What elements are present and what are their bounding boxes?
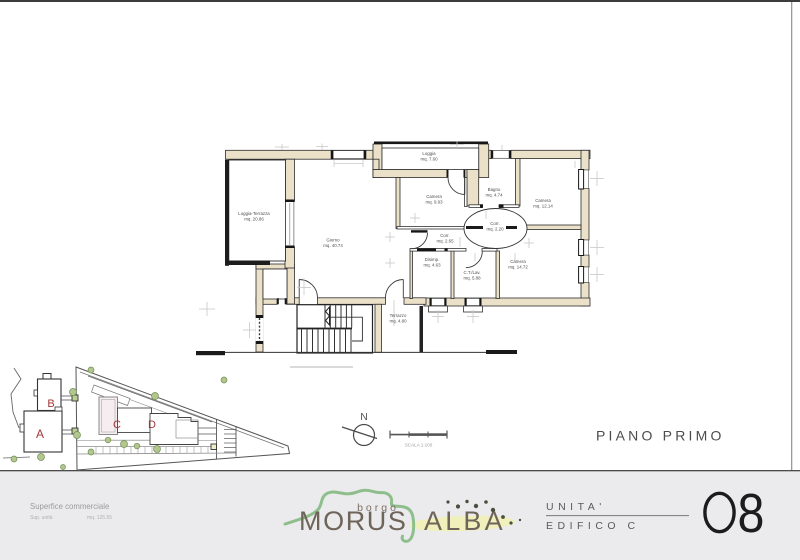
svg-text:mq. 5.88: mq. 5.88 [463,276,481,281]
svg-text:mq. 9.93: mq. 9.93 [425,200,443,205]
svg-text:mq. 40.74: mq. 40.74 [323,243,343,248]
svg-text:Terrazzo: Terrazzo [390,313,407,318]
svg-text:mq. 2.20: mq. 2.20 [486,227,504,232]
svg-text:UNITA': UNITA' [546,501,606,513]
svg-text:Camera: Camera [535,198,551,203]
svg-text:Sup. unità: Sup. unità [30,515,53,521]
svg-text:Loggia: Loggia [422,151,436,156]
svg-text:C.T./Lav.: C.T./Lav. [464,270,481,275]
svg-text:mq. 14.72: mq. 14.72 [508,265,528,270]
svg-text:mq. 125.55: mq. 125.55 [87,515,112,521]
svg-text:MORUS: MORUS [299,506,408,536]
svg-text:N: N [360,411,368,423]
svg-text:Bagno: Bagno [488,187,501,192]
svg-text:Superfice commerciale: Superfice commerciale [30,502,109,511]
svg-text:mq. 12.14: mq. 12.14 [533,204,553,209]
svg-text:mq. 4.63: mq. 4.63 [423,263,441,268]
svg-text:Corr.: Corr. [440,233,450,238]
svg-text:8: 8 [738,482,765,544]
svg-text:Disimp.: Disimp. [425,257,440,262]
svg-text:A: A [36,427,44,441]
svg-text:Giorno: Giorno [326,238,340,243]
svg-text:B: B [47,398,54,410]
svg-text:mq. 20.86: mq. 20.86 [244,217,264,222]
svg-text:mq. 2.65: mq. 2.65 [436,239,454,244]
svg-text:PIANO PRIMO: PIANO PRIMO [596,428,725,444]
svg-text:Camera: Camera [510,259,526,264]
svg-text:Loggia-Terrazza: Loggia-Terrazza [238,211,270,216]
svg-text:mq. 4.80: mq. 4.80 [389,319,407,324]
svg-text:mq. 4.74: mq. 4.74 [485,193,503,198]
svg-text:SCALA 1:100: SCALA 1:100 [405,443,433,448]
svg-text:Corr.: Corr. [490,221,500,226]
svg-text:mq. 7.60: mq. 7.60 [420,157,438,162]
svg-text:Camera: Camera [426,194,442,199]
svg-text:EDIFICO C: EDIFICO C [546,520,640,532]
svg-text:D: D [148,419,156,431]
svg-text:C: C [113,419,121,431]
